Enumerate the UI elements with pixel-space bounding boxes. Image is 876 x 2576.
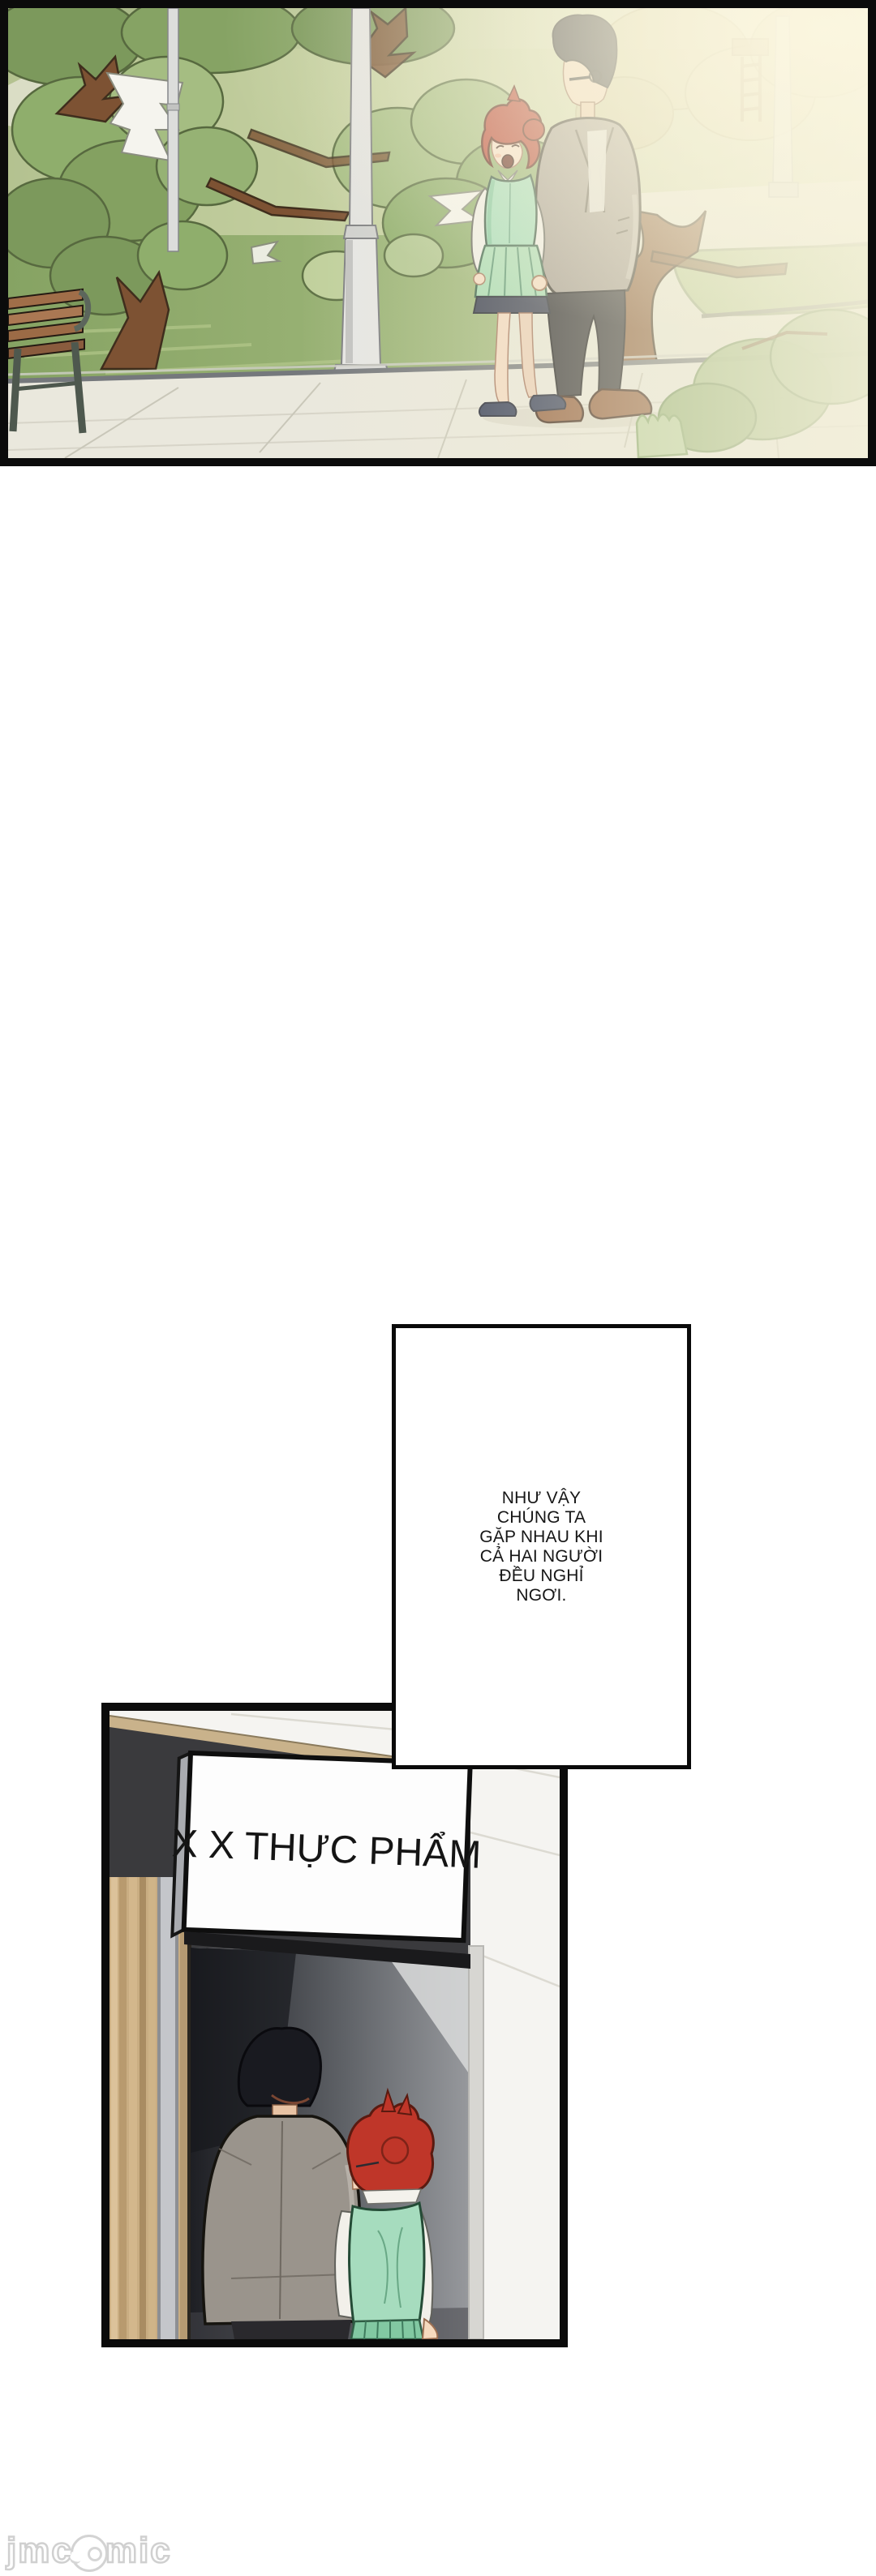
watermark-prefix: jmc — [6, 2531, 73, 2571]
narration-line: CHÚNG TA — [479, 1508, 603, 1528]
store-man-pants — [231, 2320, 351, 2339]
watermark-mascot-icon — [71, 2535, 108, 2572]
store-panel: X X THỰC PHẨM — [101, 1703, 568, 2347]
narration-line: NHƯ VẬY — [479, 1489, 603, 1508]
store-sign: X X THỰC PHẨM — [169, 1752, 485, 1947]
watermark: jmc mic — [6, 2530, 172, 2572]
narration-line: ĐỀU NGHỈ — [479, 1567, 603, 1586]
store-scene-illustration: X X THỰC PHẨM — [109, 1711, 560, 2339]
narration-text: NHƯ VẬY CHÚNG TA GẶP NHAU KHI CẢ HAI NGƯ… — [479, 1489, 603, 1605]
narration-line: CẢ HAI NGƯỜI — [479, 1547, 603, 1567]
store-woman-collar — [363, 2189, 421, 2204]
door-jamb — [469, 1946, 483, 2339]
mascot-eye-dot — [88, 2547, 102, 2561]
wood-pillar — [109, 1877, 191, 2339]
narration-line: GẶP NHAU KHI — [479, 1528, 603, 1547]
park-scene-illustration — [8, 8, 868, 458]
comic-page: NHƯ VẬY CHÚNG TA GẶP NHAU KHI CẢ HAI NGƯ… — [0, 0, 876, 2576]
park-panel — [0, 0, 876, 466]
narration-line: NGƠI. — [479, 1586, 603, 1605]
sun-glow — [8, 8, 868, 458]
watermark-suffix: mic — [105, 2531, 172, 2571]
narration-box: NHƯ VẬY CHÚNG TA GẶP NHAU KHI CẢ HAI NGƯ… — [392, 1324, 691, 1769]
store-woman-skirt — [351, 2320, 423, 2339]
